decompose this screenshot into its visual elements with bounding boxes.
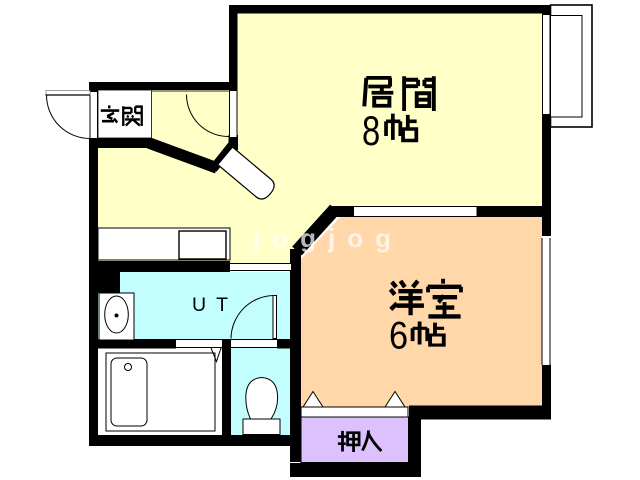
svg-text:UT: UT — [192, 294, 238, 316]
svg-text:8: 8 — [362, 107, 380, 154]
svg-text:jogjog: jogjog — [252, 223, 403, 253]
svg-text:6: 6 — [389, 313, 408, 357]
